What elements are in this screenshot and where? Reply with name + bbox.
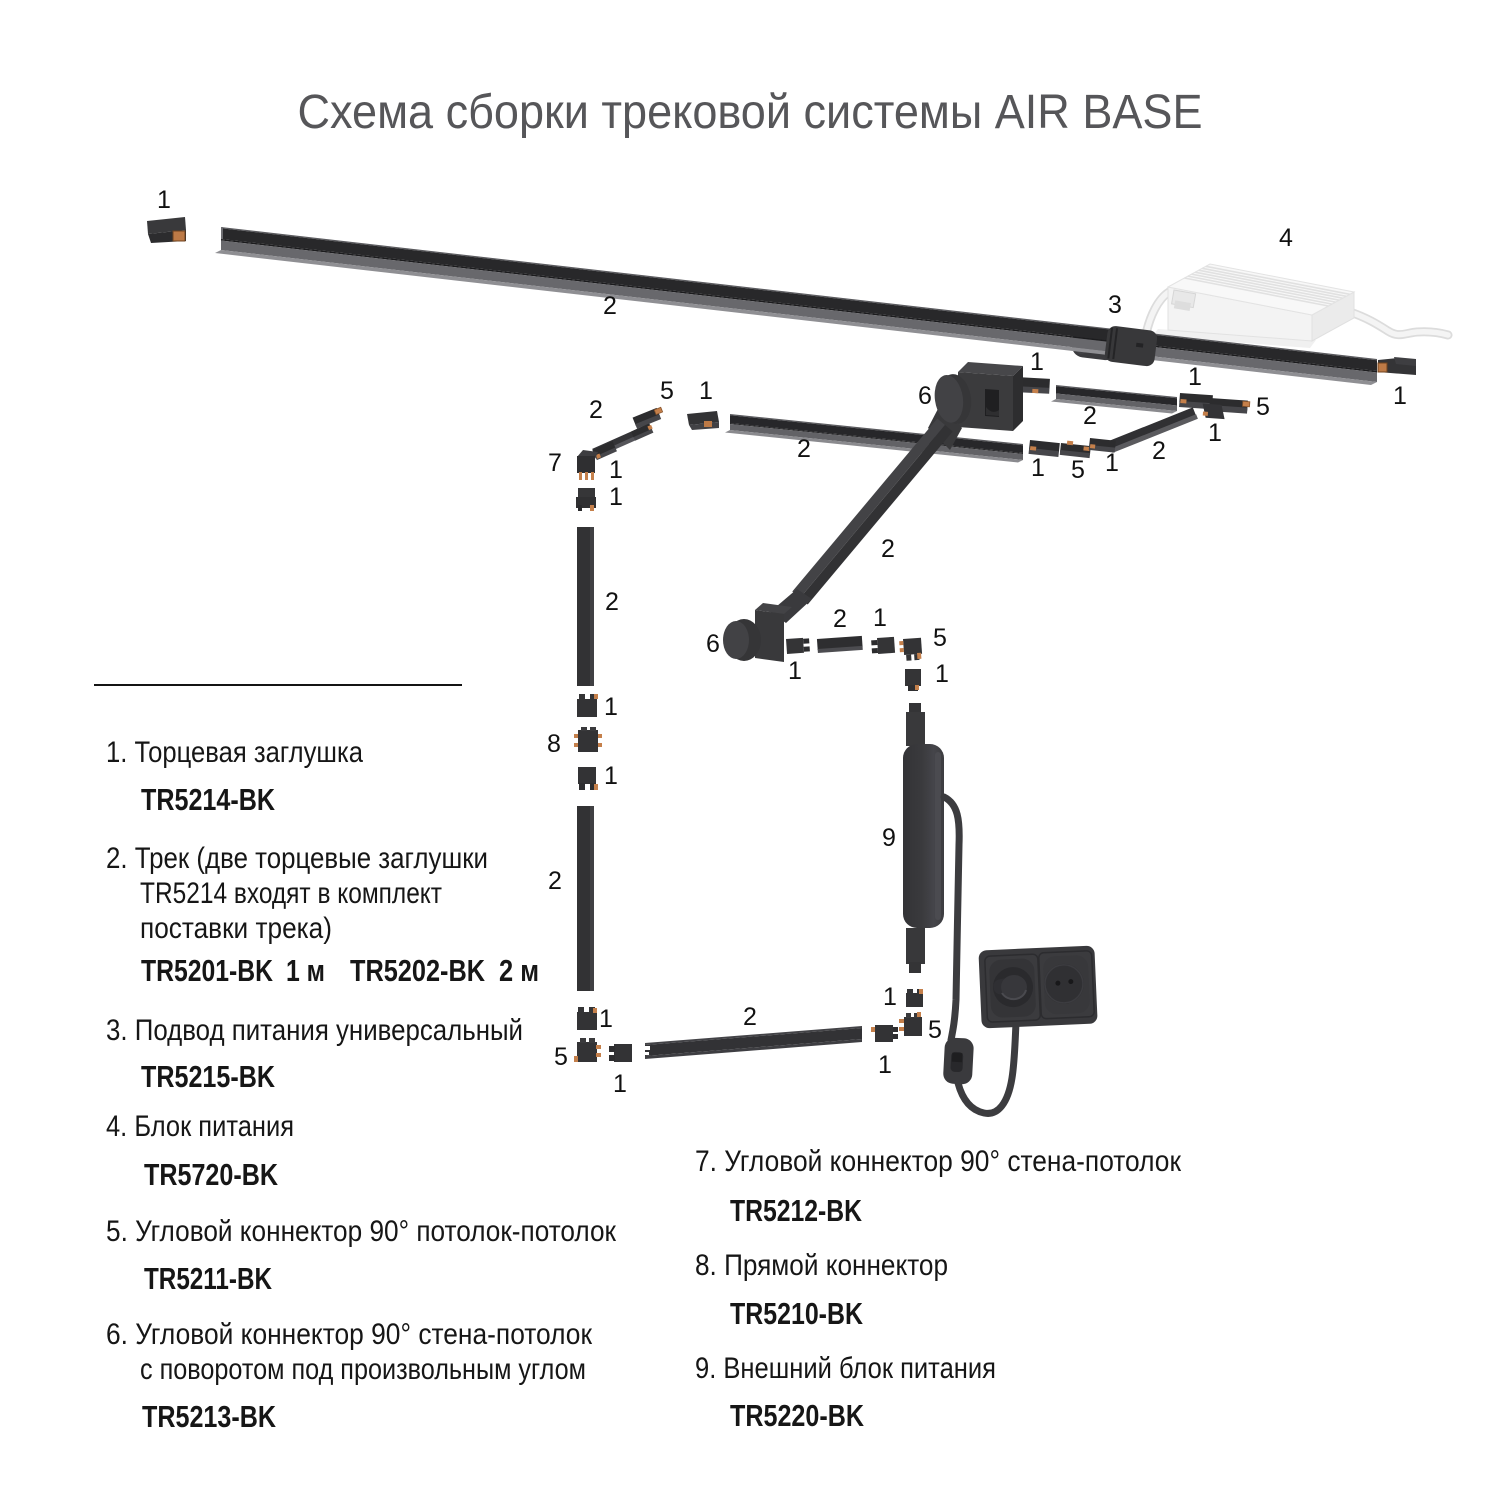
svg-text:1: 1 bbox=[609, 456, 623, 484]
svg-text:9: 9 bbox=[882, 824, 896, 852]
svg-text:1. Торцевая заглушка: 1. Торцевая заглушка bbox=[106, 736, 363, 769]
svg-text:TR5720-BK: TR5720-BK bbox=[144, 1157, 278, 1192]
svg-text:TR5214-BK: TR5214-BK bbox=[141, 782, 275, 817]
svg-text:1: 1 bbox=[1393, 382, 1407, 410]
svg-text:2 м: 2 м bbox=[499, 953, 539, 988]
svg-text:2: 2 bbox=[881, 535, 895, 563]
svg-text:5: 5 bbox=[933, 624, 947, 652]
svg-text:TR5215-BK: TR5215-BK bbox=[141, 1059, 275, 1094]
svg-text:1: 1 bbox=[788, 657, 802, 685]
svg-text:1: 1 bbox=[935, 660, 949, 688]
svg-text:1: 1 bbox=[599, 1005, 613, 1033]
svg-text:TR5220-BK: TR5220-BK bbox=[730, 1398, 864, 1433]
svg-text:Схема сборки трековой системы: Схема сборки трековой системы AIR BASE bbox=[298, 86, 1203, 139]
svg-text:6: 6 bbox=[706, 630, 720, 658]
svg-text:1: 1 bbox=[1031, 454, 1045, 482]
svg-text:TR5214 входят в комплект: TR5214 входят в комплект bbox=[140, 877, 442, 910]
svg-text:5. Угловой коннектор 90° потол: 5. Угловой коннектор 90° потолок-потолок bbox=[106, 1215, 617, 1248]
svg-text:2: 2 bbox=[605, 588, 619, 616]
svg-text:3. Подвод питания универсальны: 3. Подвод питания универсальный bbox=[106, 1014, 523, 1047]
svg-text:1: 1 bbox=[157, 186, 171, 214]
svg-text:TR5211-BK: TR5211-BK bbox=[144, 1261, 272, 1296]
svg-text:1: 1 bbox=[1030, 348, 1044, 376]
svg-text:1: 1 bbox=[613, 1070, 627, 1098]
svg-text:5: 5 bbox=[1071, 456, 1085, 484]
svg-text:5: 5 bbox=[554, 1043, 568, 1071]
svg-text:TR5210-BK: TR5210-BK bbox=[730, 1296, 863, 1331]
svg-text:1: 1 bbox=[878, 1051, 892, 1079]
svg-text:1: 1 bbox=[873, 604, 887, 632]
svg-text:1: 1 bbox=[1188, 363, 1202, 391]
svg-text:8: 8 bbox=[547, 730, 561, 758]
svg-text:2: 2 bbox=[797, 435, 811, 463]
svg-text:1: 1 bbox=[699, 377, 713, 405]
svg-text:2: 2 bbox=[603, 292, 617, 320]
svg-text:1: 1 bbox=[604, 693, 618, 721]
svg-text:5: 5 bbox=[928, 1016, 942, 1044]
svg-text:5: 5 bbox=[660, 377, 674, 405]
svg-text:TR5201-BK: TR5201-BK bbox=[141, 953, 273, 988]
svg-text:3: 3 bbox=[1108, 291, 1122, 319]
svg-text:2. Трек (две торцевые заглушки: 2. Трек (две торцевые заглушки bbox=[106, 842, 488, 875]
svg-text:2: 2 bbox=[833, 605, 847, 633]
svg-text:2: 2 bbox=[1083, 402, 1097, 430]
svg-text:2: 2 bbox=[1152, 437, 1166, 465]
svg-text:1: 1 bbox=[1105, 449, 1119, 477]
svg-text:4: 4 bbox=[1279, 224, 1293, 252]
svg-text:2: 2 bbox=[548, 867, 562, 895]
svg-text:1: 1 bbox=[604, 762, 618, 790]
svg-text:поставки трека): поставки трека) bbox=[140, 912, 332, 945]
svg-text:5: 5 bbox=[1256, 393, 1270, 421]
svg-text:6: 6 bbox=[918, 382, 932, 410]
svg-text:1: 1 bbox=[1208, 419, 1222, 447]
svg-text:7. Угловой коннектор 90° стена: 7. Угловой коннектор 90° стена-потолок bbox=[695, 1145, 1182, 1178]
svg-text:1: 1 bbox=[883, 983, 897, 1011]
svg-text:4. Блок питания: 4. Блок питания bbox=[106, 1110, 294, 1143]
svg-text:с поворотом под произвольным у: с поворотом под произвольным углом bbox=[140, 1353, 586, 1386]
svg-text:1: 1 bbox=[609, 483, 623, 511]
svg-text:TR5213-BK: TR5213-BK bbox=[142, 1399, 276, 1434]
svg-text:7: 7 bbox=[548, 449, 562, 477]
svg-text:2: 2 bbox=[589, 396, 603, 424]
svg-text:TR5202-BK: TR5202-BK bbox=[350, 953, 485, 988]
svg-text:1 м: 1 м bbox=[286, 953, 325, 988]
svg-text:8. Прямой коннектор: 8. Прямой коннектор bbox=[695, 1249, 948, 1282]
svg-text:2: 2 bbox=[743, 1003, 757, 1031]
svg-text:6. Угловой коннектор 90° стена: 6. Угловой коннектор 90° стена-потолок bbox=[106, 1318, 593, 1351]
svg-text:TR5212-BK: TR5212-BK bbox=[730, 1193, 862, 1228]
svg-text:9. Внешний блок питания: 9. Внешний блок питания bbox=[695, 1352, 996, 1385]
